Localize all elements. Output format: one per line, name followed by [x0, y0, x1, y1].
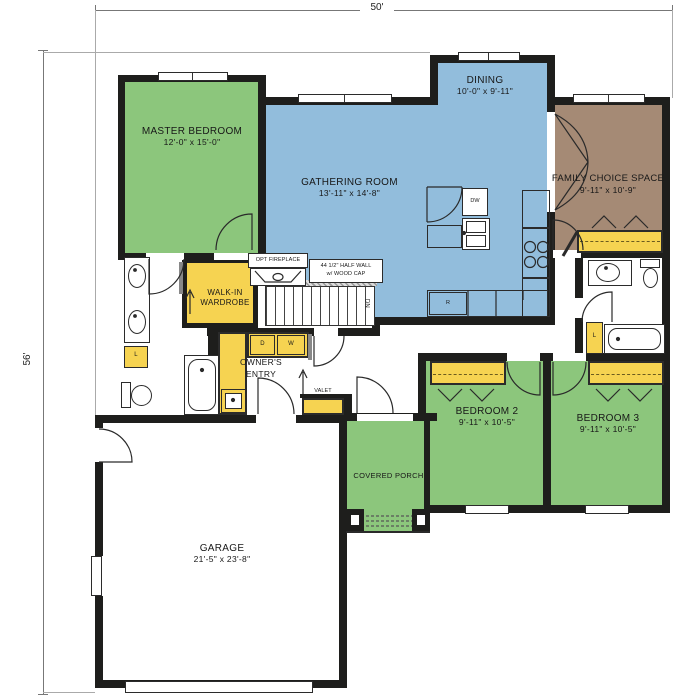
dim-height-label: 56' — [22, 344, 36, 374]
label-bedroom2: BEDROOM 2 — [428, 406, 546, 418]
window-dining — [458, 52, 520, 61]
range-cooktop — [522, 228, 550, 278]
door-arc-hall — [314, 336, 344, 366]
window-master — [158, 72, 228, 81]
opening-master-entry — [214, 253, 252, 260]
kitchen-sink-basin — [466, 221, 486, 233]
label-master-bedroom: MASTER BEDROOM — [122, 126, 262, 138]
garage-door — [125, 681, 313, 693]
closet-shelf-line — [580, 241, 660, 242]
label-gathering-size: 13'-11" x 14'-8" — [272, 189, 427, 199]
wall-bath-left-bottom — [575, 318, 583, 358]
window-mullion — [608, 95, 609, 102]
master-toilet-bowl — [131, 385, 152, 406]
label-garage-size: 21'-5" x 23'-8" — [152, 555, 292, 565]
wall-porch-right — [424, 421, 430, 511]
door-arc-owners-entry — [258, 378, 294, 414]
window-mullion — [344, 95, 345, 102]
label-family-choice-size: 9'-11" x 10'-9" — [547, 186, 669, 196]
opening-hall-door — [314, 329, 338, 336]
opening-bedroom2-door — [507, 353, 540, 361]
opening-bath-door — [575, 298, 583, 318]
floor-plan: 50' 56' — [0, 0, 700, 700]
stairs-dn-label: DN — [363, 295, 370, 311]
window-family — [573, 94, 645, 103]
opening-bedroom3-door — [553, 353, 586, 361]
opt-fireplace-label: OPT FIREPLACE — [248, 257, 308, 263]
door-arc-front-entry — [357, 377, 393, 413]
window-bedroom2 — [465, 505, 509, 514]
opening-master-hall — [146, 253, 184, 260]
label-dining: DINING — [430, 75, 540, 87]
label-gathering: GATHERING ROOM — [272, 177, 427, 189]
hall-toilet-tank — [640, 259, 660, 268]
master-toilet-tank — [121, 382, 131, 408]
hall-tub-inner — [608, 328, 661, 350]
window-garage — [91, 556, 102, 596]
label-owners-entry-line2: ENTRY — [228, 370, 294, 380]
label-covered-porch: COVERED PORCH — [346, 472, 431, 481]
upper-cabinet — [522, 190, 550, 228]
pocket-door-leaf — [308, 334, 312, 360]
dim-width-label: 50' — [360, 2, 394, 16]
dim-ext-line — [43, 52, 430, 53]
dryer-label: D — [250, 341, 275, 348]
hall-toilet-bowl — [643, 268, 658, 288]
half-wall-note-line2: w/ WOOD CAP — [309, 271, 383, 277]
closet-shelf-line — [433, 374, 503, 375]
dim-ext-line — [95, 10, 96, 415]
porch-pillar-core — [417, 515, 425, 525]
label-bedroom3: BEDROOM 3 — [549, 413, 667, 425]
porch-edge — [346, 531, 430, 533]
valet-label: VALET — [298, 388, 348, 394]
master-tub-inner — [188, 359, 216, 411]
porch-pillar-core — [351, 515, 359, 525]
pantry-shelf — [427, 225, 462, 248]
window-bedroom3 — [585, 505, 629, 514]
washer-label: W — [277, 341, 305, 348]
linen-label: L — [124, 352, 148, 359]
wall-stairs-bottom-right — [338, 328, 380, 336]
dim-ext-line — [672, 10, 673, 98]
bedroom3-closet-shelf — [588, 361, 664, 385]
refrigerator-label: R — [429, 300, 467, 306]
label-wardrobe-line2: WARDROBE — [196, 298, 254, 307]
label-master-bedroom-size: 12'-0" x 15'-0" — [122, 138, 262, 148]
dishwasher-label: DW — [462, 198, 488, 204]
wall-bath-left-top — [575, 258, 583, 298]
label-garage: GARAGE — [152, 543, 292, 555]
master-sink — [128, 310, 146, 334]
door-arc-hall-bath — [582, 292, 612, 322]
bedroom2-closet-shelf — [430, 361, 506, 385]
label-owners-entry-line1: OWNER'S — [228, 358, 294, 368]
master-sink — [128, 264, 146, 288]
hall-sink — [596, 263, 620, 282]
closet-shelf-line — [591, 374, 661, 375]
label-bedroom2-size: 9'-11" x 10'-5" — [428, 418, 546, 428]
window-mullion — [192, 73, 193, 80]
fireplace-symbol-box — [250, 268, 306, 286]
dim-tick — [38, 50, 48, 51]
dim-ext-line — [43, 692, 95, 693]
half-wall-note-line1: 44 1/2" HALF WALL — [309, 263, 383, 269]
staircase — [265, 286, 375, 326]
room-master-bedroom — [118, 75, 266, 260]
label-wardrobe-line1: WALK-IN — [196, 288, 254, 297]
pocket-door-leaf — [179, 262, 183, 294]
opening-garage-service-door — [95, 428, 103, 462]
label-family-choice: FAMILY CHOICE SPACE — [547, 174, 669, 185]
kitchen-sink-basin — [466, 235, 486, 247]
wall-kitchen-bottom — [375, 317, 548, 325]
label-dining-size: 10'-0" x 9'-11" — [430, 87, 540, 97]
dim-line-left — [43, 50, 44, 695]
linen-label: L — [586, 333, 603, 340]
dim-tick — [38, 694, 48, 695]
valet-closet — [302, 398, 344, 415]
window-mullion — [488, 53, 489, 60]
label-bedroom3-size: 9'-11" x 10'-5" — [549, 425, 667, 435]
laundry-sink-basin — [225, 393, 242, 409]
window-gathering — [298, 94, 392, 103]
opening-front-door — [357, 414, 413, 421]
opening-owners-entry-door — [256, 415, 296, 423]
